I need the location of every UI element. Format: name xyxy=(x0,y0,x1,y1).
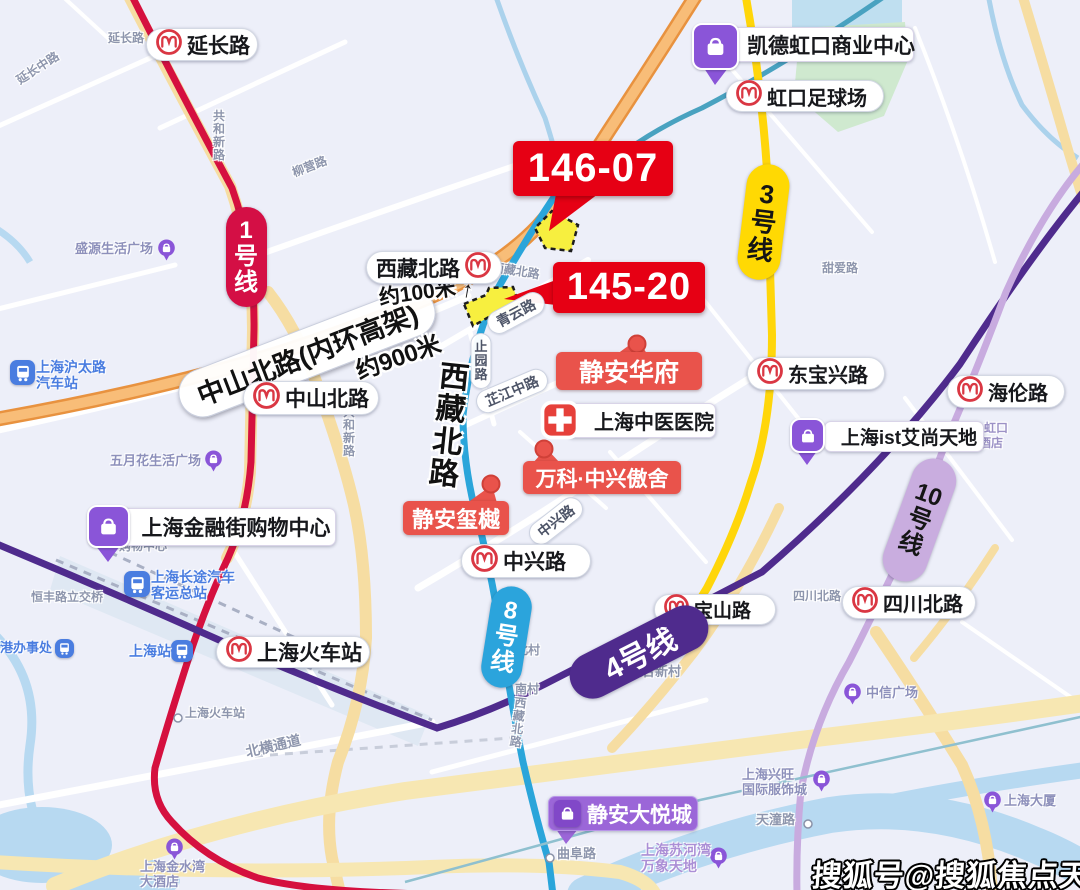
map-road-text: 虹口 xyxy=(984,422,1008,435)
poi-card-label[interactable]: 上海中医医院 xyxy=(566,403,716,438)
metro-line-badge-char: 线 xyxy=(745,234,774,265)
metro-station-label: 东宝兴路 xyxy=(788,359,868,388)
shopping-bag-icon xyxy=(692,23,739,70)
bus-icon[interactable] xyxy=(55,639,74,658)
poi-card-text: 凯德虹口商业中心 xyxy=(747,30,915,60)
poi-card-text: 上海中医医院 xyxy=(594,406,714,435)
poi-pin-label[interactable]: 上海金水湾大酒店 xyxy=(140,860,205,890)
poi-card-text: 静安大悦城 xyxy=(587,799,692,829)
map-road-text-char: 路 xyxy=(343,445,355,458)
shopping-bag-icon xyxy=(87,505,130,548)
metro-line-badge-char: 1 xyxy=(239,218,252,244)
map-road-text-char: 共 xyxy=(213,110,225,123)
residential-project-label[interactable]: 万科·中兴傲舍 xyxy=(523,461,681,494)
road-name-char: 园 xyxy=(474,354,487,368)
poi-pin-label[interactable]: 上海兴旺国际服饰城 xyxy=(742,768,807,798)
shopping-bag-icon xyxy=(790,418,825,453)
road-name-char: 路 xyxy=(474,368,487,382)
shopping-bag-icon xyxy=(554,800,581,827)
bus-icon[interactable] xyxy=(10,360,35,385)
metro-station[interactable]: 中山北路 xyxy=(243,381,379,415)
transit-poi-label[interactable]: 上海站 xyxy=(129,643,171,659)
poi-pin-label-line: 盛源生活广场 xyxy=(75,242,153,257)
poi-pin-label[interactable]: 盛源生活广场 xyxy=(75,242,153,257)
map-road-text: 上海火车站 xyxy=(185,707,245,720)
road-name-pill: 止园路 xyxy=(470,333,491,389)
poi-pin-icon[interactable] xyxy=(982,790,1003,819)
metro-line-badge: 1号线 xyxy=(226,207,267,307)
shanghai-metro-logo-icon xyxy=(736,80,762,112)
poi-pin-label-line: 大酒店 xyxy=(140,875,205,890)
transit-poi-label-line: 港办事处 xyxy=(0,641,52,656)
metro-station[interactable]: 东宝兴路 xyxy=(747,357,885,390)
transit-poi-label[interactable]: 上海沪太路汽车站 xyxy=(36,359,106,391)
metro-line-badge-char: 8 xyxy=(501,598,518,626)
poi-pin-label-line: 五月花生活广场 xyxy=(110,454,201,469)
map-road-text: 曲阜路 xyxy=(557,847,596,861)
poi-pin-icon[interactable] xyxy=(811,769,832,798)
transit-poi-label[interactable]: 上海长途汽车客运总站 xyxy=(151,569,235,601)
shanghai-metro-logo-icon xyxy=(253,382,280,415)
poi-pin-label-line: 中信广场 xyxy=(866,686,918,701)
metro-station-label: 西藏北路 xyxy=(376,253,460,283)
residential-project-label[interactable]: 静安华府 xyxy=(556,352,702,390)
metro-station[interactable]: 西藏北路 xyxy=(366,251,502,284)
station-ring-icon xyxy=(544,851,556,869)
poi-pin-label-line: 万象天地 xyxy=(641,858,711,874)
land-plot-banner[interactable]: 146-07 xyxy=(513,141,673,196)
map-road-text-char: 新 xyxy=(213,136,225,149)
major-road-name-char: 路 xyxy=(427,457,460,492)
transit-poi-label-line: 上海沪太路 xyxy=(36,359,106,375)
poi-pin-label-line: 上海兴旺 xyxy=(742,768,807,783)
transit-poi-label-line: 上海站 xyxy=(129,643,171,659)
poi-pin-label-line: 上海苏河湾 xyxy=(641,842,711,858)
map-road-text: 甜爱路 xyxy=(822,262,858,275)
major-road-name-char: 西 xyxy=(437,361,470,396)
bus-icon[interactable] xyxy=(171,640,193,662)
map-road-text-char: 新 xyxy=(343,432,355,445)
metro-station[interactable]: 上海火车站 xyxy=(216,636,370,668)
metro-station-label: 海伦路 xyxy=(988,377,1048,406)
metro-line-badge-char: 线 xyxy=(234,270,258,296)
poi-pin-icon[interactable] xyxy=(203,449,224,478)
metro-station-label: 延长路 xyxy=(187,30,250,60)
poi-card-text: 上海金融街购物中心 xyxy=(142,512,331,542)
poi-pin-icon[interactable] xyxy=(156,238,177,267)
metro-station[interactable]: 虹口足球场 xyxy=(726,80,884,112)
bus-icon[interactable] xyxy=(124,571,150,597)
map-road-text-char: 路 xyxy=(509,735,523,749)
poi-card-label[interactable]: 上海ist艾尚天地 xyxy=(824,421,984,452)
station-ring-icon xyxy=(172,711,184,729)
poi-card-label[interactable]: 静安大悦城 xyxy=(548,796,698,831)
transit-poi-label-line: 上海长途汽车 xyxy=(151,569,235,585)
metro-station[interactable]: 海伦路 xyxy=(947,375,1065,408)
land-plot-banner[interactable]: 145-20 xyxy=(553,262,705,313)
poi-pin-label[interactable]: 上海大厦 xyxy=(1004,794,1056,809)
shanghai-metro-logo-icon xyxy=(852,587,878,619)
transit-poi-label-line: 客运总站 xyxy=(151,585,235,601)
transit-poi-label-line: 汽车站 xyxy=(36,375,106,391)
poi-pin-label[interactable]: 五月花生活广场 xyxy=(110,454,201,469)
poi-card-label[interactable]: 上海金融街购物中心 xyxy=(120,508,336,546)
shanghai-metro-logo-icon xyxy=(465,252,491,284)
map-road-text: 四川北路 xyxy=(793,590,841,603)
poi-pin-icon[interactable] xyxy=(708,846,729,875)
metro-station[interactable]: 四川北路 xyxy=(842,586,976,619)
hospital-cross-icon xyxy=(540,400,580,445)
map-road-text-char: 和 xyxy=(213,123,225,136)
metro-line-badge-char: 3 xyxy=(758,179,776,209)
map-road-text-char: 和 xyxy=(343,419,355,432)
metro-station-label: 四川北路 xyxy=(883,588,963,617)
map-road-text: 天潼路 xyxy=(756,813,795,827)
shanghai-metro-logo-icon xyxy=(156,29,182,61)
shanghai-metro-logo-icon xyxy=(471,545,498,578)
poi-pin-label[interactable]: 中信广场 xyxy=(866,686,918,701)
poi-pin-icon[interactable] xyxy=(842,682,863,711)
map-road-text: 延长路 xyxy=(108,32,144,45)
poi-pin-label-line: 国际服饰城 xyxy=(742,783,807,798)
metro-station-label: 上海火车站 xyxy=(257,637,362,667)
metro-station-label: 中山北路 xyxy=(285,383,369,413)
shanghai-metro-logo-icon xyxy=(957,376,983,408)
map-road-text-char: 路 xyxy=(213,149,225,162)
major-road-name-char: 藏 xyxy=(434,393,467,428)
transit-poi-label[interactable]: 港办事处 xyxy=(0,641,52,656)
poi-pin-label-line: 上海金水湾 xyxy=(140,860,205,875)
metro-line-badge-char: 线 xyxy=(488,648,516,677)
residential-project-label[interactable]: 静安玺樾 xyxy=(403,501,509,535)
metro-station[interactable]: 延长路 xyxy=(146,28,258,61)
map-road-text: 共和新路 xyxy=(213,110,225,162)
road-name-char: 止 xyxy=(474,340,487,354)
poi-pin-label-line: 上海大厦 xyxy=(1004,794,1056,809)
watermark: 搜狐号@搜狐焦点天门站 xyxy=(810,851,1080,890)
shanghai-metro-logo-icon xyxy=(757,358,783,390)
map-road-text: 南村 xyxy=(515,683,539,696)
metro-line-badge-char: 号 xyxy=(234,244,258,270)
metro-station-label: 虹口足球场 xyxy=(767,82,867,111)
metro-station[interactable]: 中兴路 xyxy=(461,544,591,578)
poi-pin-label[interactable]: 上海苏河湾万象天地 xyxy=(641,842,711,874)
map-canvas[interactable]: 延长路延长中路柳营路共和新路甜爱路西藏北路共和新路联合新村北村南村西藏北路上海火… xyxy=(0,0,1080,890)
poi-card-label[interactable]: 凯德虹口商业中心 xyxy=(714,27,914,62)
station-ring-icon xyxy=(802,817,814,835)
shanghai-metro-logo-icon xyxy=(226,636,252,668)
major-road-name-char: 北 xyxy=(431,425,464,460)
metro-station-label: 中兴路 xyxy=(503,546,566,576)
metro-line-badge-char: 线 xyxy=(894,528,925,561)
poi-card-text: 上海ist艾尚天地 xyxy=(841,423,977,450)
map-road-text: 恒丰路立交桥 xyxy=(31,591,103,604)
